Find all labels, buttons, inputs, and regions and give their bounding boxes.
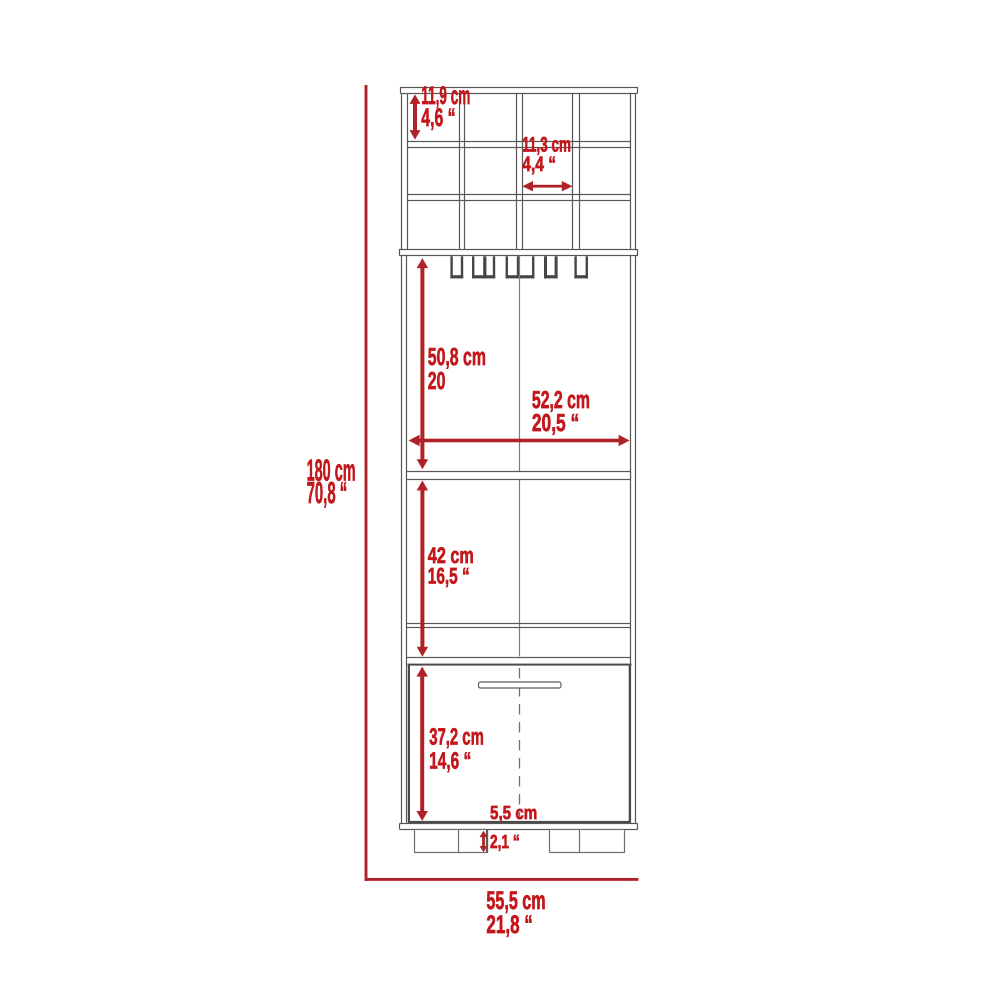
svg-text:20: 20 xyxy=(428,368,446,395)
svg-text:5,5 cm: 5,5 cm xyxy=(490,803,537,824)
svg-text:37,2 cm: 37,2 cm xyxy=(429,724,484,750)
svg-text:2,1 “: 2,1 “ xyxy=(490,832,520,853)
svg-text:4,4 “: 4,4 “ xyxy=(522,153,556,176)
svg-text:14,6 “: 14,6 “ xyxy=(429,747,471,773)
svg-text:16,5 “: 16,5 “ xyxy=(428,564,470,589)
svg-text:20,5 “: 20,5 “ xyxy=(532,410,579,437)
svg-text:21,8 “: 21,8 “ xyxy=(486,911,532,939)
svg-text:70,8 “: 70,8 “ xyxy=(307,477,348,510)
svg-text:50,8 cm: 50,8 cm xyxy=(428,344,486,371)
svg-text:4,6 “: 4,6 “ xyxy=(421,104,455,132)
